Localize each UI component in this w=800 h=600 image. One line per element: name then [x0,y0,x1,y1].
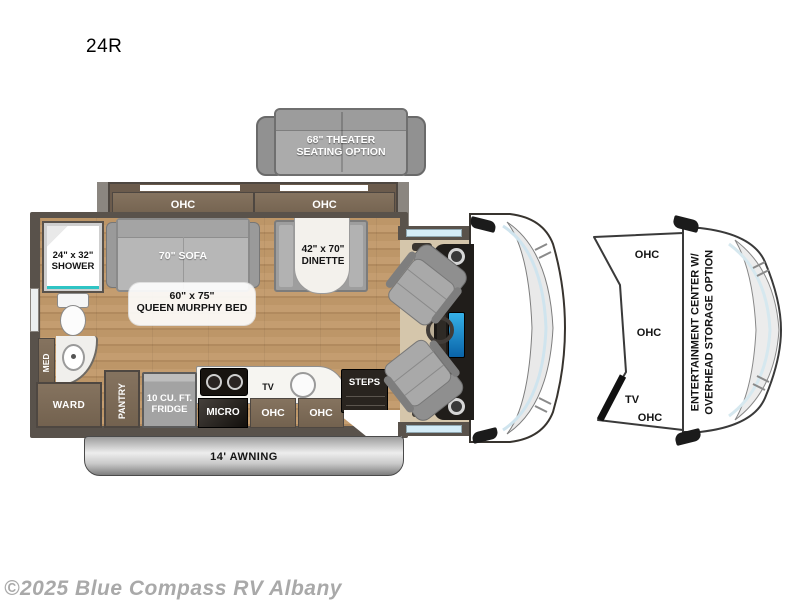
option-ohc-middle-label: OHC [630,327,668,340]
kitchen-ohc-right-label: OHC [299,407,343,419]
murphy-bed-overlay: 60" x 75" QUEEN MURPHY BED [128,282,256,326]
shower-label: 24" x 32" SHOWER [44,251,102,273]
rear-wall-window [30,288,39,332]
sofa: 70" SOFA [116,218,250,292]
shower: 24" x 32" SHOWER [42,221,104,293]
floorplan-canvas: 24R 68" THEATER SEATING OPTION OHC OHC [0,0,800,600]
ohc-over-dinette-label: OHC [255,199,394,212]
theater-seating-option: 68" THEATER SEATING OPTION [256,106,426,180]
fridge-label: 10 CU. FT. FRIDGE [144,394,195,416]
awning: 14' AWNING [84,436,404,476]
dinette-label: 42" x 70" DINETTE [289,244,357,267]
kitchen-ohc-left-label: OHC [251,407,295,419]
watermark: ©2025 Blue Compass RV Albany [4,577,342,600]
awning-label: 14' AWNING [85,451,403,464]
slideout-window-left [140,185,240,191]
shower-drain-accent [47,286,99,289]
pantry: PANTRY [104,370,140,428]
sofa-label: 70" SOFA [118,250,248,262]
option-tv-label: TV [618,394,646,407]
refrigerator: 10 CU. FT. FRIDGE [142,372,197,428]
pantry-label: PANTRY [117,377,127,425]
theater-label: 68" THEATER SEATING OPTION [274,134,408,158]
ohc-over-sofa-label: OHC [113,199,253,212]
slideout-window-right [280,185,368,191]
steps-label: STEPS [342,378,387,389]
med-cabinet: MED [38,338,55,386]
option-ohc-bottom-label: OHC [631,412,669,425]
wardrobe: WARD [36,382,102,428]
cab-window-top [406,229,462,237]
kitchen-ohc-right: OHC [298,398,344,428]
kitchen-sink-icon [290,372,316,398]
cab-window-bottom [406,425,462,433]
med-label: MED [42,343,52,383]
kitchen-ohc-left: OHC [250,398,296,428]
microwave: MICRO [198,398,248,428]
dinette-table: 42" x 70" DINETTE [294,218,350,294]
micro-label: MICRO [199,407,247,419]
murphy-bed-label: 60" x 75" QUEEN MURPHY BED [129,290,255,314]
option-ohc-top-label: OHC [628,249,666,262]
kitchen-tv-label: TV [256,382,280,392]
plan-title: 24R [86,36,122,58]
ward-label: WARD [38,400,100,412]
bath-faucet-icon [71,354,76,359]
cooktop-icon [200,368,248,396]
toilet-icon [56,293,90,337]
